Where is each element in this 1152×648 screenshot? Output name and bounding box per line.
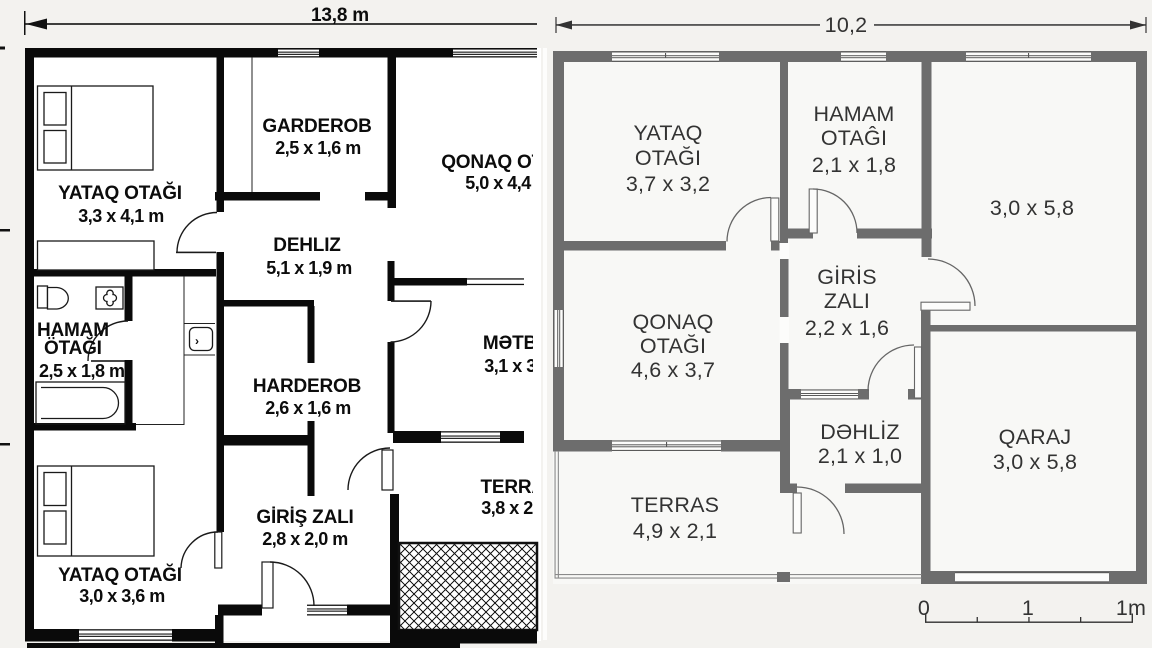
svg-text:13,8 m: 13,8 m [311,5,369,26]
svg-text:YATAQ OTAĞI: YATAQ OTAĞI [58,564,182,586]
svg-text:2,6 x 1,6 m: 2,6 x 1,6 m [265,398,351,418]
svg-text:ZALI: ZALI [824,289,870,313]
svg-text:QONAQ: QONAQ [632,310,713,334]
svg-text:1: 1 [1022,596,1034,620]
svg-text:0: 0 [918,596,930,620]
svg-text:10,2: 10,2 [825,13,868,37]
svg-text:TERRAS: TERRAS [631,493,719,517]
svg-text:4,6 x 3,7: 4,6 x 3,7 [631,358,715,382]
svg-text:DƏHLİZ: DƏHLİZ [820,420,900,444]
svg-text:3,0 x 5,8: 3,0 x 5,8 [993,450,1077,474]
svg-text:1m: 1m [1116,596,1146,620]
svg-text:GİRİŞ ZALI: GİRİŞ ZALI [256,507,353,528]
svg-text:HAMAM: HAMAM [813,102,894,126]
svg-text:GİRİS: GİRİS [817,265,877,289]
svg-text:YATAQ: YATAQ [633,121,702,145]
svg-text:HARDEROB: HARDEROB [253,376,361,397]
svg-text:ÖTAĞI: ÖTAĞI [44,337,102,359]
svg-text:OTAĜI: OTAĜI [821,125,887,150]
svg-text:2,1 x 1,8: 2,1 x 1,8 [812,153,896,177]
svg-text:OTAĞI: OTAĞI [640,333,706,358]
svg-text:2,5 x 1,6 m: 2,5 x 1,6 m [275,138,361,158]
svg-text:3,7 x 3,2: 3,7 x 3,2 [626,172,710,196]
svg-text:YATAQ OTAĞI: YATAQ OTAĞI [58,182,182,204]
svg-text:4,9 x 2,1: 4,9 x 2,1 [633,519,717,543]
svg-text:GARDEROB: GARDEROB [262,116,371,137]
svg-text:3,0 x 3,6 m: 3,0 x 3,6 m [79,586,165,606]
svg-text:OTAĞI: OTAĞI [635,145,701,170]
svg-text:2,2 x 1,6: 2,2 x 1,6 [805,316,889,340]
svg-text:2,1 x 1,0: 2,1 x 1,0 [818,444,902,468]
svg-text:QARAJ: QARAJ [999,425,1072,449]
svg-text:DEHLIZ: DEHLIZ [273,235,341,256]
svg-text:5,1 x 1,9 m: 5,1 x 1,9 m [266,258,352,278]
svg-text:2,8 x 2,0 m: 2,8 x 2,0 m [262,529,348,549]
svg-text:3,3 x 4,1 m: 3,3 x 4,1 m [78,206,164,226]
svg-text:3,0 x 5,8: 3,0 x 5,8 [990,196,1074,220]
svg-text:2,5 x 1,8 m: 2,5 x 1,8 m [39,361,125,381]
svg-text:›: › [195,334,199,348]
